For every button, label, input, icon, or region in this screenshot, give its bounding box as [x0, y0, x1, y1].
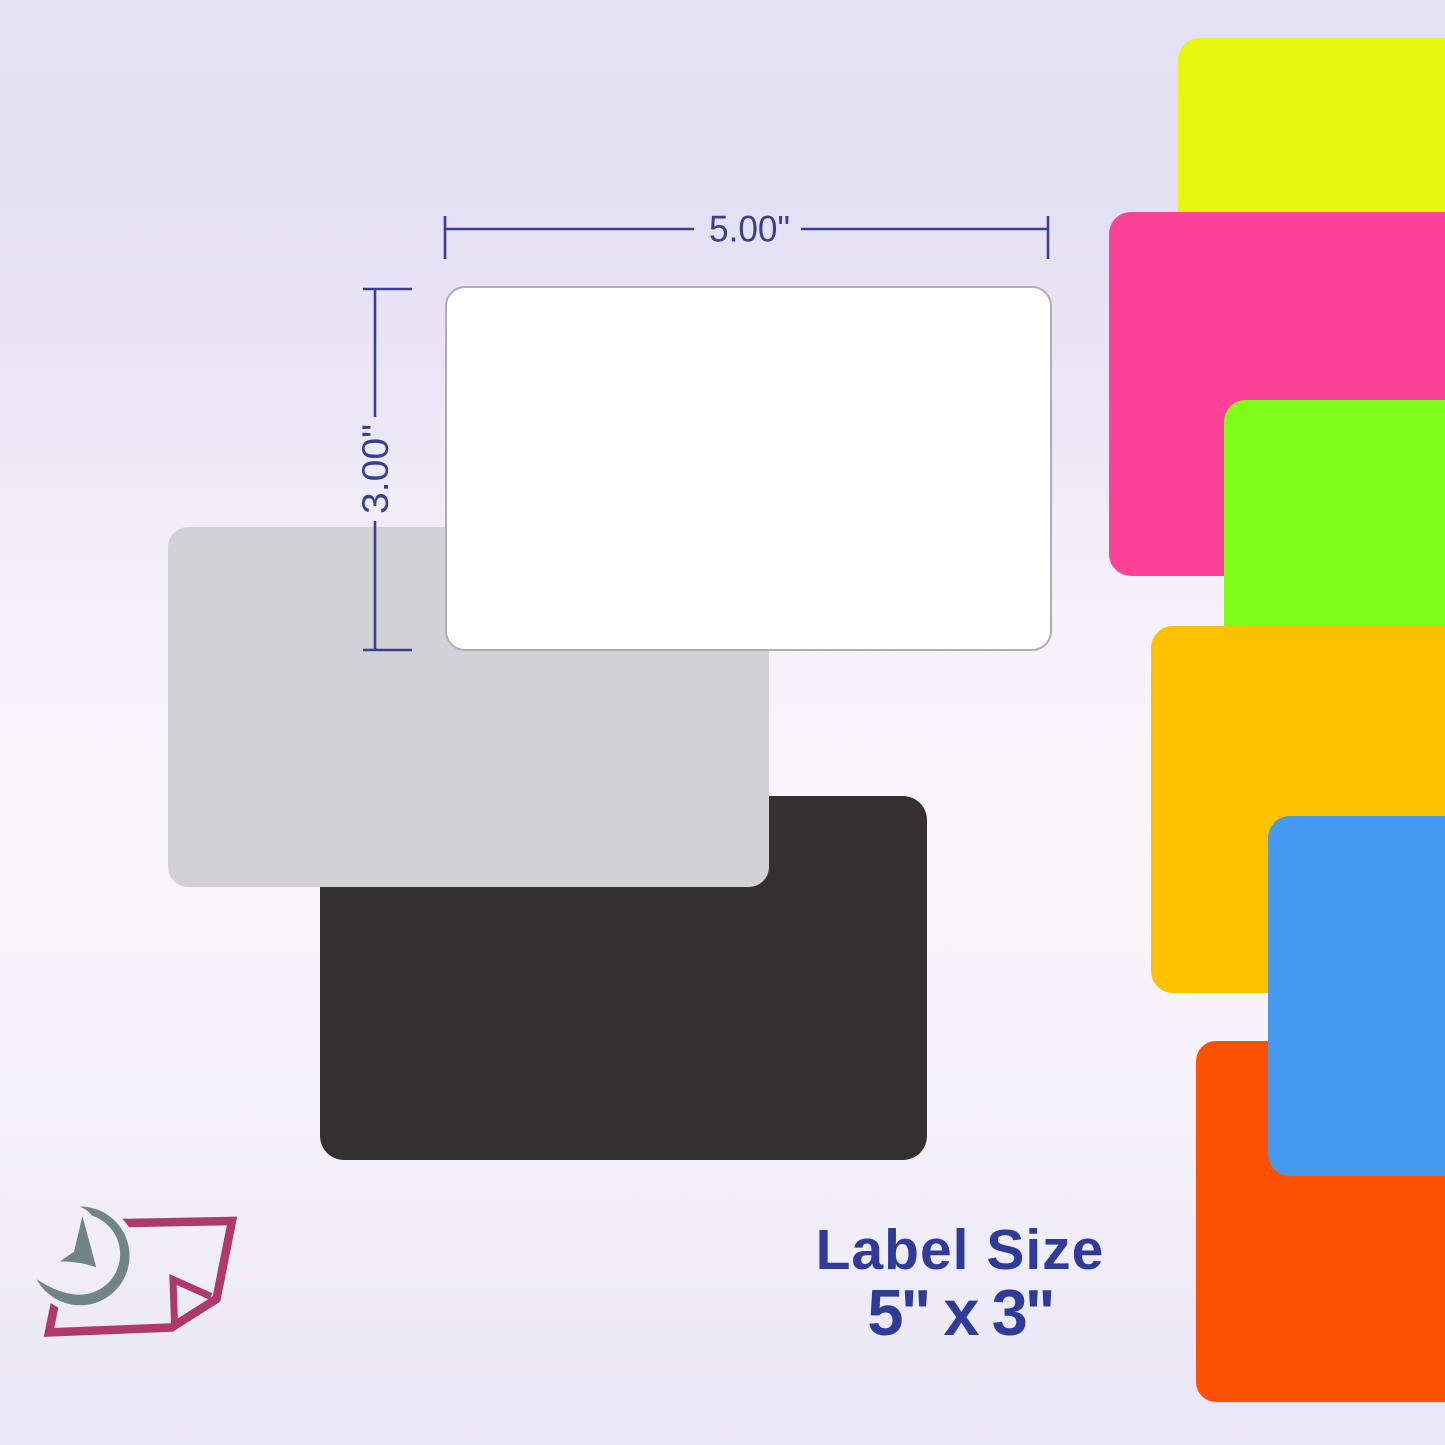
svg-text:3.00": 3.00" [355, 424, 396, 514]
svg-text:5.00": 5.00" [709, 209, 790, 250]
